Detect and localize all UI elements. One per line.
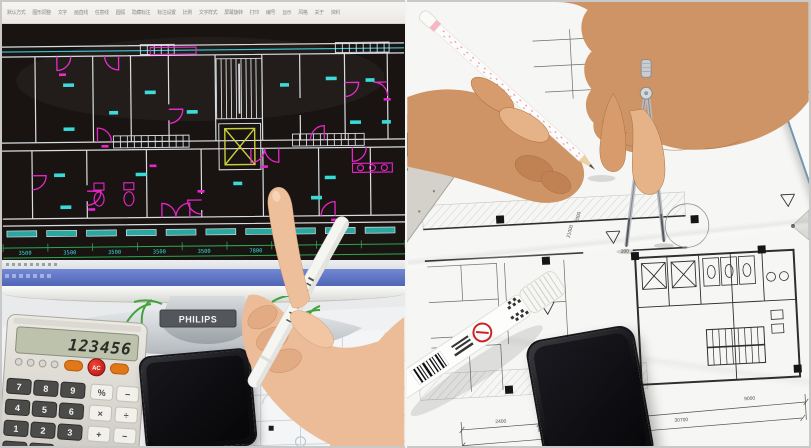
toilet-cubicles	[703, 254, 792, 337]
photo-seam-divider	[405, 0, 407, 448]
svg-text:×: ×	[97, 409, 103, 419]
menu-item: 图形调整	[32, 9, 50, 16]
menu-item: 资料	[331, 9, 340, 16]
pen-tip-edge	[784, 202, 809, 246]
menu-item: 画直线	[74, 9, 88, 16]
dimension-label: 3500	[18, 251, 31, 257]
dimension-label: 30700	[674, 417, 688, 424]
menu-item: 屏幕旋转	[224, 9, 242, 16]
menu-item: 风格	[298, 9, 307, 16]
menu-item: 文字样式	[199, 9, 217, 16]
menu-item: 编号	[266, 9, 275, 16]
svg-text:9: 9	[70, 386, 76, 396]
menu-item: 默认方式	[7, 9, 25, 16]
svg-text:6: 6	[68, 406, 74, 416]
svg-text:−: −	[125, 389, 131, 399]
calculator-off-button	[110, 363, 129, 374]
menu-item: 任意线	[95, 9, 109, 16]
right-panel-drafting-scene: 2000 21000 200 2400 9000 30700	[407, 2, 809, 446]
cad-menu-bar: 默认方式 图形调整 文字 画直线 任意线 圆弧 隐藏标注 标注设置 比例 文字样…	[2, 2, 405, 24]
svg-text:5: 5	[42, 405, 48, 415]
svg-text:+: +	[96, 429, 102, 439]
dimension-label: 2400	[495, 419, 507, 426]
svg-text:÷: ÷	[123, 410, 129, 420]
menu-item: 隐藏标注	[132, 9, 150, 16]
svg-text:8: 8	[43, 384, 49, 394]
phone-screen	[146, 355, 251, 446]
menu-item: 打印	[250, 9, 259, 16]
calculator-ce-button	[64, 360, 83, 371]
phone-screen	[532, 332, 648, 446]
monitor-brand-logo: PHILIPS	[179, 315, 218, 325]
menu-item: 显示	[282, 9, 291, 16]
dimension-label: 9000	[744, 396, 756, 403]
calculator-ac-label: AC	[92, 366, 102, 373]
taskbar	[2, 269, 405, 286]
menu-item: 关于	[314, 9, 323, 16]
dimension-label: 3500	[198, 249, 211, 255]
menu-item: 标注设置	[157, 9, 175, 16]
svg-text:2: 2	[40, 426, 46, 436]
dimension-label: 3500	[63, 250, 76, 256]
menu-item: 文字	[58, 9, 67, 16]
calculator-corner: 0 0 1 4	[407, 102, 517, 272]
calculator-number-keys: 7 8 9 4 5 6 1 2 3 00 .	[2, 378, 85, 446]
svg-text:00: 00	[9, 444, 20, 446]
svg-text:200: 200	[621, 248, 630, 254]
svg-text:%: %	[97, 387, 106, 398]
dimension-label: 3500	[153, 249, 166, 255]
menu-item: 比例	[183, 9, 192, 16]
svg-text:7: 7	[16, 382, 22, 392]
cad-floorplan-screen: 3500 3500 3500 3500 3500 7800 56900	[2, 24, 405, 260]
elevator-shafts	[641, 261, 696, 290]
dimension-label: 3500	[108, 250, 121, 256]
svg-text:−: −	[122, 431, 128, 441]
cad-command-bar	[2, 260, 405, 269]
workspace-photo: 默认方式 图形调整 文字 画直线 任意线 圆弧 隐藏标注 标注设置 比例 文字样…	[0, 0, 811, 448]
svg-text:4: 4	[15, 403, 21, 413]
svg-text:1: 1	[13, 424, 19, 434]
svg-text:21000: 21000	[566, 224, 575, 239]
svg-text:3: 3	[67, 427, 73, 437]
left-panel-monitor-scene: 默认方式 图形调整 文字 画直线 任意线 圆弧 隐藏标注 标注设置 比例 文字样…	[2, 2, 405, 446]
smartphone	[138, 347, 258, 446]
dimension-label: 7800	[249, 248, 262, 254]
menu-item: 圆弧	[116, 9, 125, 16]
